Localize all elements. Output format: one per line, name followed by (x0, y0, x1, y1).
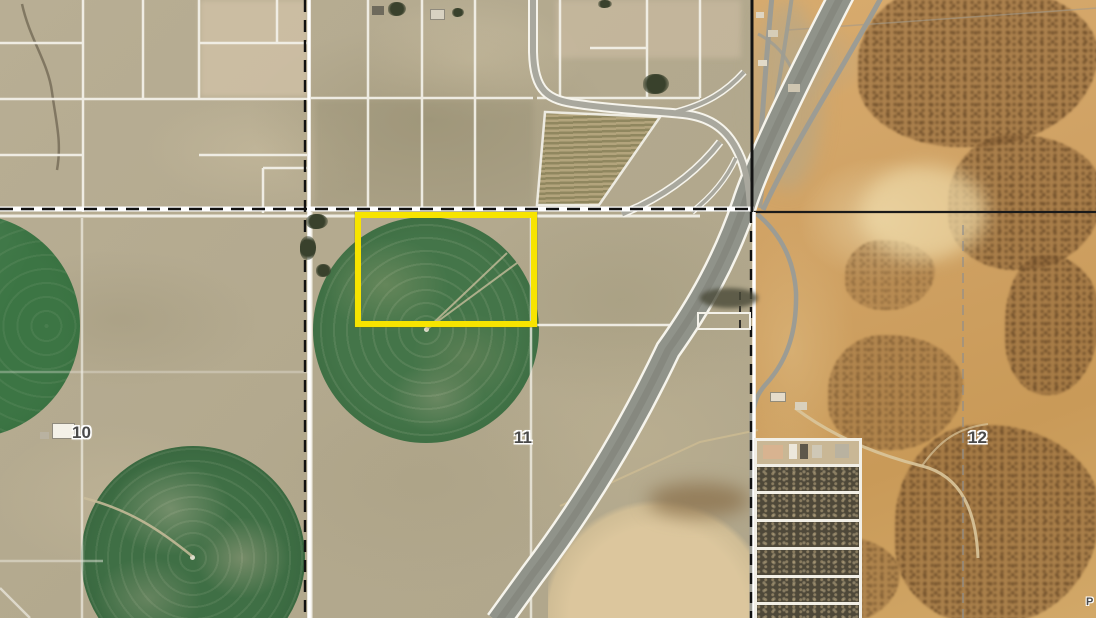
highway-yard (697, 312, 751, 330)
dry-wash (22, 4, 59, 170)
strip-parcel-vegetated (757, 494, 859, 519)
dirt-track (84, 498, 192, 556)
desert-house (756, 12, 764, 18)
dark-vegetation-strip (700, 288, 758, 308)
map-line-overlay (0, 0, 1096, 618)
parcel-boundary-lines (0, 0, 700, 618)
strip-farm-building (789, 444, 797, 459)
section-label-11: 11 (514, 429, 532, 446)
strip-parcels-block (754, 438, 862, 618)
strip-farm-building (800, 444, 808, 459)
aerial-map-canvas[interactable]: 10 11 12 P (0, 0, 1096, 618)
tree-cluster (452, 8, 464, 17)
desert-house (788, 84, 800, 92)
strip-farm-building (763, 445, 783, 459)
farmstead-building (795, 402, 807, 410)
desert-house (758, 60, 767, 66)
desert-house (768, 30, 778, 37)
strip-parcel-vegetated (757, 578, 859, 602)
section-label-10: 10 (72, 424, 91, 441)
strip-parcel-farmyard (757, 441, 859, 464)
edge-partial-label: P (1086, 597, 1093, 608)
strip-parcel-vegetated (757, 522, 859, 547)
strip-parcel-vegetated (757, 550, 859, 575)
strip-farm-building (835, 444, 849, 458)
rural-building (430, 9, 445, 20)
strip-parcel-vegetated (757, 467, 859, 491)
strip-parcel-vegetated (757, 605, 859, 618)
rural-building (372, 6, 384, 15)
farm-building (40, 432, 49, 439)
highlight-rectangle[interactable] (355, 212, 537, 327)
section-label-12: 12 (968, 429, 987, 446)
strip-farm-building (812, 445, 822, 458)
farmstead-building (770, 392, 786, 402)
